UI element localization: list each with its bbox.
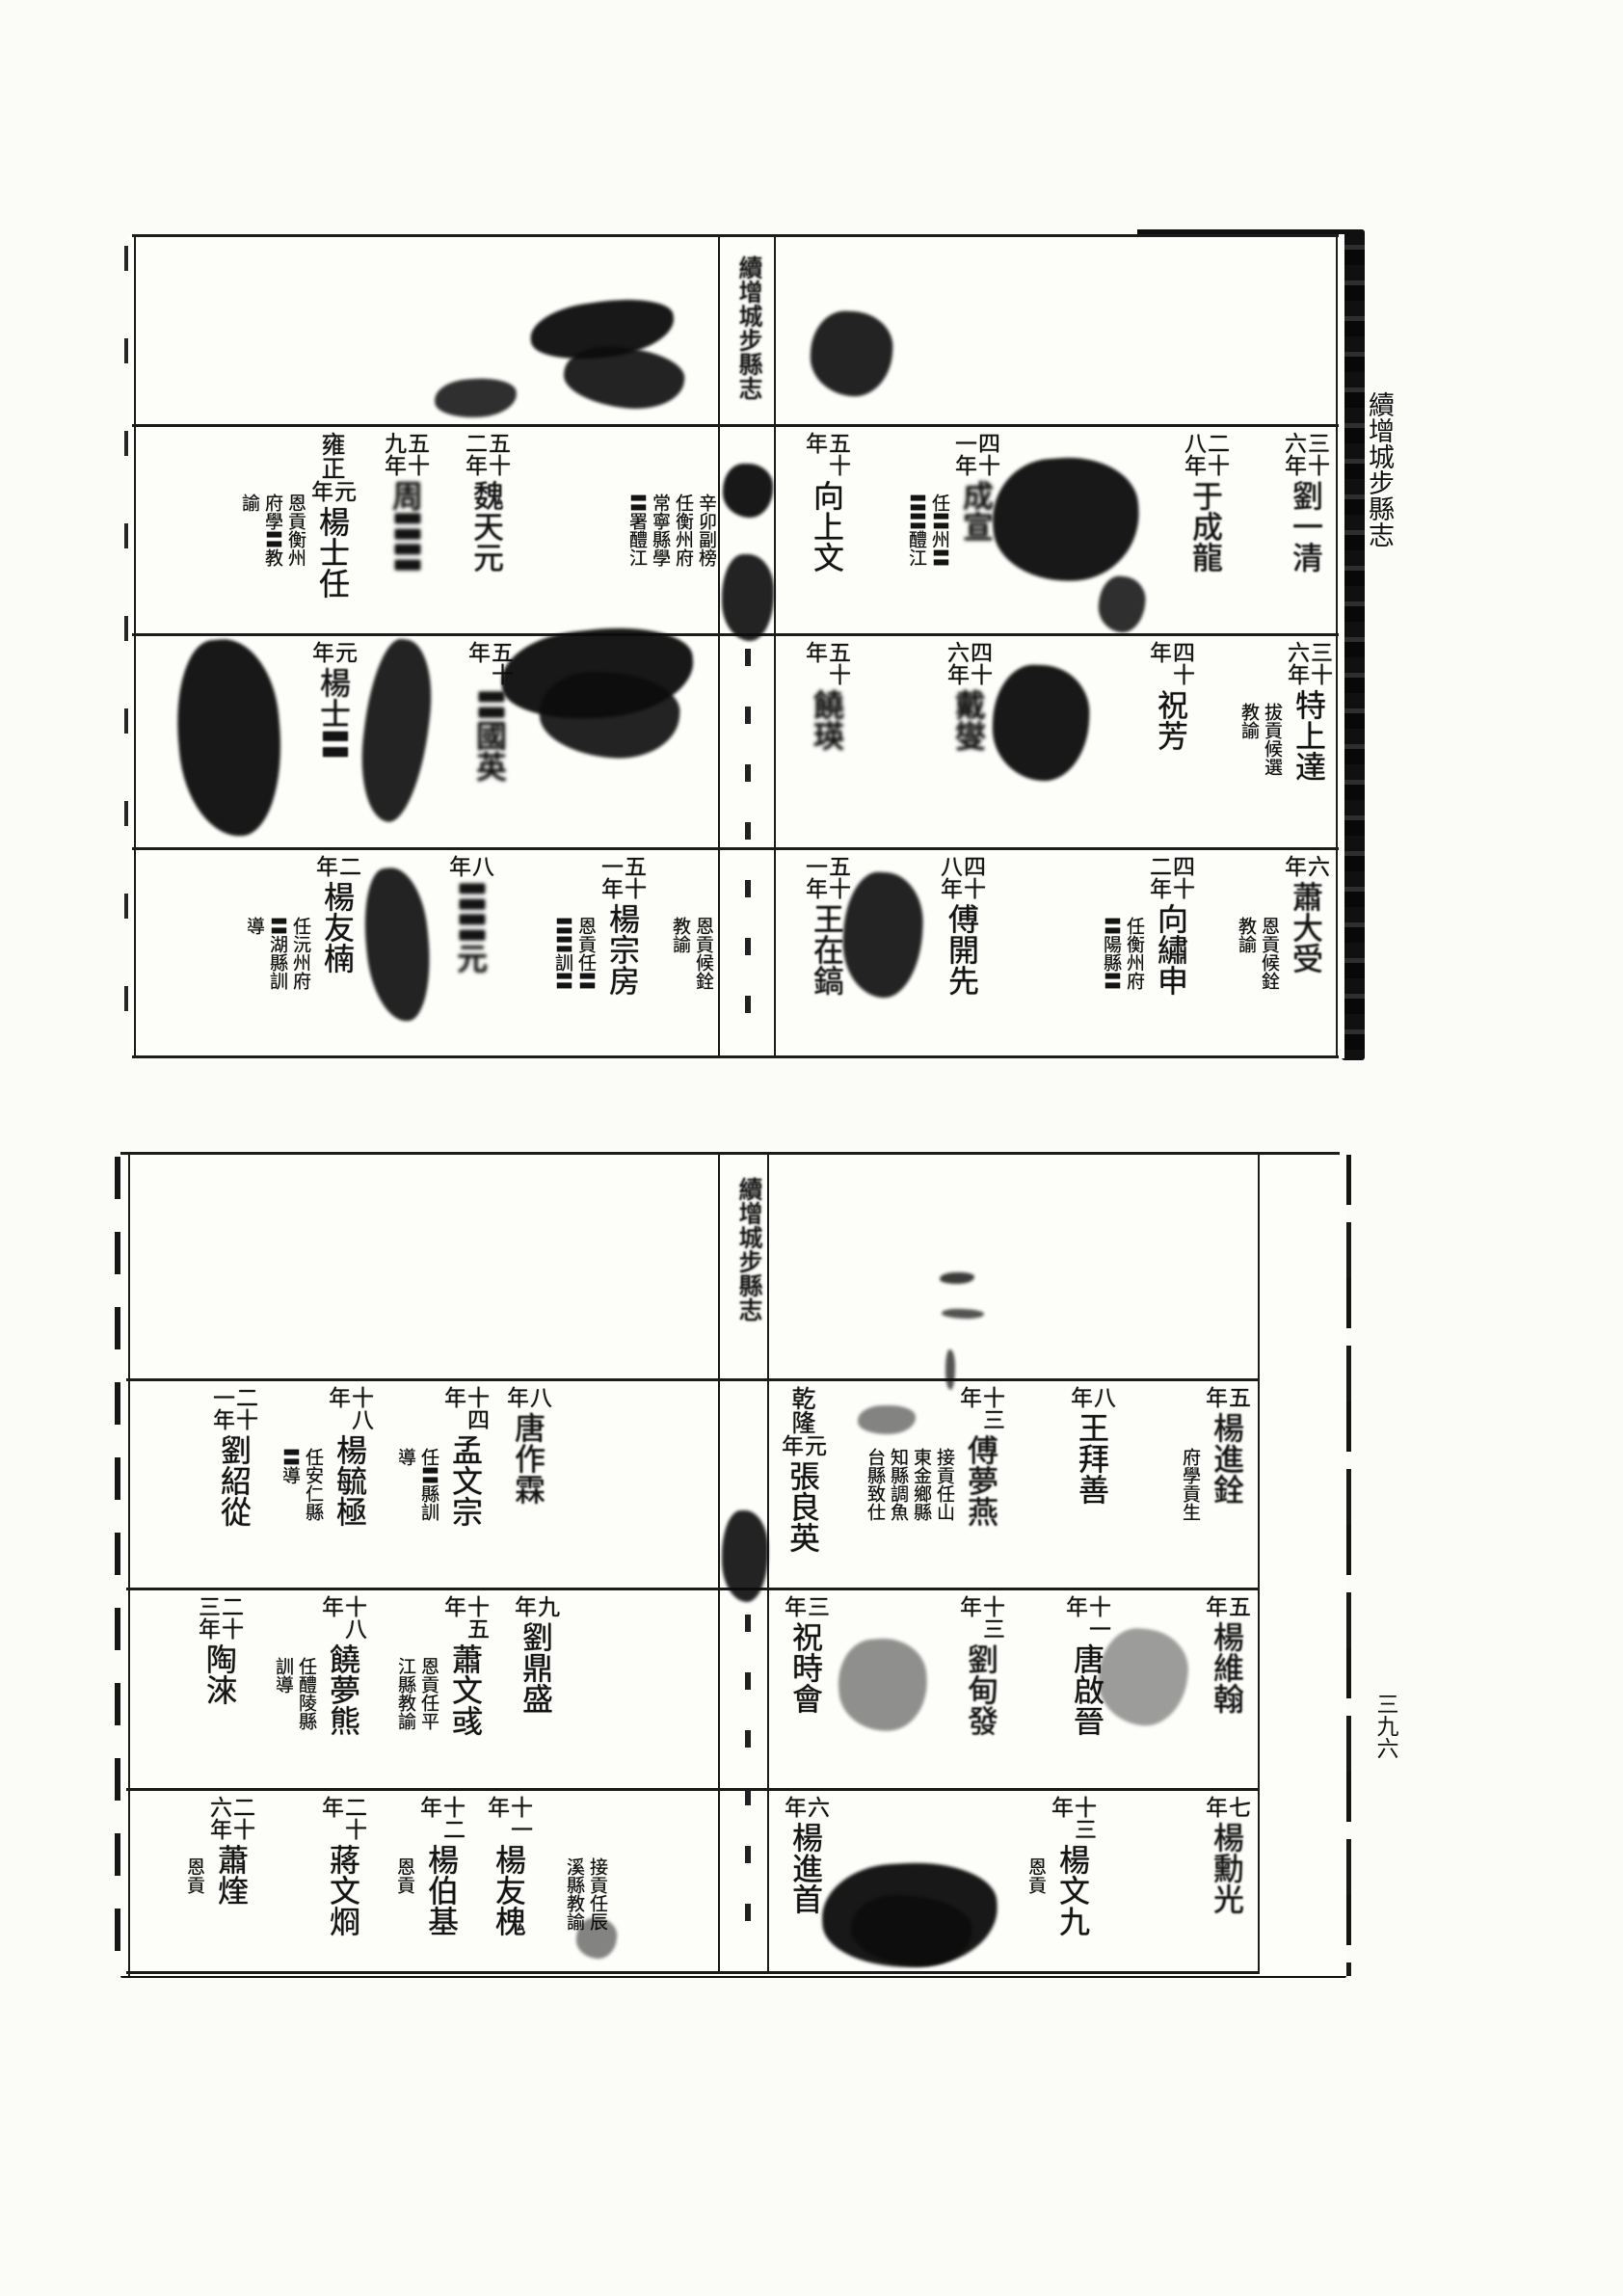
- official-name: 劉甸發: [960, 1643, 1000, 1736]
- annotation-column: 諭: [238, 494, 259, 567]
- year-subcolumn: 五: [1227, 1595, 1249, 1617]
- entry-annotations: 恩貢候銓教諭: [669, 917, 713, 990]
- official-name: 劉紹從: [213, 1434, 253, 1527]
- table-rule-vertical: [718, 234, 720, 1058]
- official-name: 楊文九: [1051, 1844, 1092, 1936]
- official-name: 楊士〓: [312, 667, 353, 760]
- entry-annotations: 恩貢衡州府學〓教諭: [238, 494, 306, 567]
- official-entry: 四十年祝芳: [1148, 641, 1192, 834]
- entry-annotations: 任〓州〓〓〓醴江: [905, 494, 949, 567]
- annotation-column: 導: [243, 917, 264, 990]
- official-name: 劉鼎盛: [515, 1621, 555, 1714]
- year-subcolumn: 年: [1204, 1386, 1226, 1408]
- official-name: 孟文宗: [444, 1434, 485, 1527]
- entry-year: 四十一年: [953, 432, 998, 476]
- year-subcolumn: 八: [1092, 1386, 1114, 1408]
- entry-main-column: 五十二年魏天元: [464, 432, 508, 573]
- official-name: 于成龍: [1184, 480, 1225, 573]
- annotation-column-group: 恩貢候銓教諭: [669, 855, 713, 1046]
- entry-year: 三十六年: [1283, 432, 1328, 476]
- official-entry: 四十二年向繡申任衡州府〓陽縣〓: [1100, 855, 1192, 1046]
- official-entry: 四十一年成宣任〓州〓〓〓醴江: [905, 432, 998, 623]
- official-entry: 八年唐作霖: [505, 1386, 549, 1577]
- ink-blob: [991, 663, 1091, 782]
- year-subcolumn: 年: [505, 1386, 527, 1408]
- entry-main-column: 五十九年周〓〓: [383, 432, 427, 573]
- ink-blob: [561, 342, 687, 414]
- entry-main-column: 二十八年于成龍: [1183, 432, 1227, 573]
- year-subcolumn: 年: [804, 641, 826, 685]
- year-subcolumn: 年: [447, 855, 469, 877]
- annotation-column: 台縣致仕: [864, 1448, 885, 1521]
- year-subcolumn: 八: [528, 1386, 550, 1408]
- table-rule-vertical: [1258, 1152, 1260, 1973]
- entry-year: 十二年: [418, 1796, 464, 1840]
- official-name: 〓國英: [468, 689, 509, 782]
- official-name: 楊勳光: [1206, 1822, 1246, 1914]
- year-subcolumn: 三年: [197, 1595, 219, 1640]
- year-subcolumn: 十四: [466, 1386, 488, 1430]
- entry-main-column: 十二年楊伯基: [418, 1796, 463, 1936]
- official-entry: 二十六年蕭煃恩貢: [183, 1796, 253, 1962]
- year-subcolumn: 年: [1050, 1796, 1072, 1840]
- entry-main-column: 四十八年傅開先: [939, 855, 983, 996]
- official-entry: 五十年饒瑛: [804, 641, 848, 834]
- entry-year: 十八年: [320, 1595, 365, 1640]
- entry-main-column: 十四年孟文宗: [442, 1386, 487, 1527]
- entry-main-column: 五年楊進銓: [1204, 1386, 1248, 1505]
- official-name: 楊士任: [311, 506, 352, 599]
- entry-year: 十三年: [958, 1386, 1003, 1430]
- entry-year: 六年: [783, 1796, 828, 1818]
- year-subcolumn: 六: [1306, 855, 1328, 877]
- annotation-column: 任衡州府: [1123, 917, 1144, 990]
- year-subcolumn: 四十: [969, 641, 991, 685]
- table-rule-horizontal: [132, 1055, 1339, 1058]
- torn-edge-right-top: [1342, 229, 1365, 1060]
- official-entry: 十四年孟文宗任〓縣訓導: [394, 1386, 487, 1577]
- entry-year: 四十八年: [939, 855, 984, 899]
- entry-main-column: 三年祝時會: [783, 1595, 827, 1714]
- entry-main-column: 十一年楊友槐: [486, 1796, 530, 1936]
- year-subcolumn: 五十: [827, 855, 849, 899]
- entry-annotations: 任衡州府〓陽縣〓: [1100, 917, 1144, 990]
- year-subcolumn: 元: [333, 641, 356, 663]
- entry-annotations: 恩貢任平江縣教諭: [394, 1657, 439, 1730]
- table-rule-horizontal: [132, 847, 1339, 850]
- official-entry: 十三年劉甸發: [958, 1595, 1002, 1778]
- official-name: 成宣: [955, 480, 996, 542]
- ink-blob: [989, 453, 1144, 586]
- official-entry: 六年楊進首: [783, 1796, 827, 1962]
- annotation-column: 知縣調魚: [887, 1448, 908, 1521]
- official-name: 楊宗房: [601, 903, 642, 996]
- year-subcolumn: 八: [470, 855, 492, 877]
- entry-main-column: 二十年蔣文烱: [320, 1796, 364, 1936]
- annotation-column: 〓〓訓〓: [551, 917, 572, 990]
- scanned-page: 續增城步縣志 三九六 續增城步縣志 三十六年劉一清二十八年于成龍四十一年成宣任〓…: [0, 0, 1623, 2296]
- ink-blob: [722, 554, 774, 641]
- entry-year: 五十九年: [383, 432, 428, 476]
- year-subcolumn: 年: [1148, 641, 1170, 685]
- official-name: 〓〓元: [449, 881, 490, 974]
- annotation-column: 恩貢衡州: [284, 494, 306, 567]
- entry-main-column: 六年楊進首: [783, 1796, 827, 1914]
- entry-year: 六年: [1283, 855, 1328, 877]
- entry-main-column: 十三年楊文九: [1050, 1796, 1094, 1936]
- official-name: 向繡申: [1150, 903, 1190, 996]
- year-subcolumn: 年: [783, 1595, 805, 1617]
- year-subcolumn: 十三: [1073, 1796, 1095, 1840]
- era-label: 乾隆: [788, 1386, 815, 1434]
- ink-blob: [836, 1636, 930, 1734]
- entry-year: 十五年: [442, 1595, 488, 1640]
- ink-blob: [940, 1271, 974, 1284]
- year-subcolumn: 六年: [1286, 641, 1308, 685]
- official-name: 蕭大受: [1285, 881, 1325, 974]
- ink-blob: [722, 1510, 768, 1602]
- entry-year: 十一年: [486, 1796, 531, 1840]
- entry-year: 十八年: [327, 1386, 372, 1430]
- year-subcolumn: 年: [1069, 1386, 1091, 1408]
- year-subcolumn: 二: [337, 855, 359, 877]
- table-rule-horizontal: [126, 1588, 1260, 1590]
- entry-main-column: 四十二年向繡申: [1148, 855, 1192, 996]
- official-entry: 三十六年劉一清: [1283, 432, 1327, 623]
- annotation-column: 〓陽縣〓: [1100, 917, 1121, 990]
- entry-annotations: 任醴陵縣訓導: [272, 1657, 316, 1730]
- year-subcolumn: 年: [783, 1796, 805, 1818]
- ink-blob: [942, 1308, 984, 1320]
- entry-year: 五十一年: [599, 855, 645, 899]
- official-name: 楊進銓: [1206, 1412, 1246, 1505]
- entry-year: 元年: [309, 480, 355, 502]
- year-subcolumn: 年: [1204, 1796, 1226, 1818]
- year-subcolumn: 一年: [953, 432, 975, 476]
- entry-annotations: 辛卯副榜任衡州府常寧縣學〓署醴江: [625, 494, 716, 567]
- official-entry: 六年蕭大受恩貢候銓教諭: [1235, 855, 1327, 1046]
- official-entry: 八年王拜善: [1069, 1386, 1113, 1577]
- year-subcolumn: 年: [327, 1386, 349, 1430]
- year-subcolumn: 四十: [976, 432, 998, 476]
- year-subcolumn: 五十: [487, 432, 509, 476]
- year-subcolumn: 十五: [466, 1595, 488, 1640]
- entry-year: 八年: [447, 855, 492, 877]
- official-entry: 十一年楊友槐: [486, 1796, 530, 1962]
- year-subcolumn: 四十: [962, 855, 984, 899]
- annotation-column: 任衡州府: [672, 494, 693, 567]
- fold-marks: [745, 1615, 751, 1952]
- official-name: 楊進首: [785, 1822, 825, 1914]
- official-name: 楊毓極: [329, 1434, 369, 1527]
- entry-year: 四十六年: [945, 641, 991, 685]
- official-name: 楊維翰: [1206, 1621, 1246, 1714]
- official-name: 周〓〓: [385, 480, 425, 573]
- table-rule-horizontal: [132, 424, 1339, 427]
- official-name: 傅開先: [941, 903, 981, 996]
- entry-year: 二十年: [320, 1796, 365, 1840]
- annotation-column: 恩貢候銓: [1258, 917, 1279, 990]
- official-name: 唐作霖: [507, 1412, 547, 1505]
- year-subcolumn: 年: [1283, 855, 1305, 877]
- year-subcolumn: 九: [536, 1595, 558, 1617]
- entry-main-column: 五十年〓國英: [466, 641, 511, 782]
- year-subcolumn: 年: [958, 1386, 980, 1430]
- entry-main-column: 二十六年蕭煃: [208, 1796, 253, 1906]
- ink-blob: [840, 870, 926, 1000]
- ink-blob: [434, 376, 519, 420]
- official-entry: 二十一年劉紹從: [211, 1386, 255, 1577]
- entry-main-column: 八年唐作霖: [505, 1386, 549, 1505]
- entry-annotations: 恩貢: [1024, 1857, 1046, 1894]
- ink-blob: [945, 1349, 955, 1390]
- entry-year: 二十三年: [197, 1595, 242, 1640]
- entry-main-column: 六年蕭大受: [1283, 855, 1327, 974]
- year-subcolumn: 年: [1064, 1595, 1086, 1640]
- fold-title-top: 續增城步縣志: [724, 255, 776, 400]
- year-subcolumn: 十八: [350, 1386, 372, 1430]
- official-entry: 二十三年陶淶: [197, 1595, 241, 1778]
- entry-year: 元年: [780, 1434, 825, 1456]
- year-subcolumn: 年: [418, 1796, 440, 1840]
- year-subcolumn: 四十: [1171, 641, 1193, 685]
- official-name: 饒夢熊: [322, 1643, 362, 1736]
- annotation-column: 〓湖縣訓: [266, 917, 287, 990]
- page-number: 三九六: [1372, 1693, 1397, 1759]
- entry-year: 二年: [314, 855, 359, 877]
- year-subcolumn: 二十: [234, 1386, 256, 1430]
- official-name: 傅夢燕: [960, 1434, 1000, 1527]
- annotation-column: 東金鄉縣: [910, 1448, 931, 1521]
- annotation-column: 教諭: [669, 917, 690, 990]
- year-subcolumn: 五十: [623, 855, 645, 899]
- table-rule-vertical: [718, 1152, 720, 1973]
- fold-marks: [745, 649, 751, 1034]
- entry-main-column: 七年楊勳光: [1204, 1796, 1248, 1914]
- entry-main-column: 三十六年劉一清: [1283, 432, 1327, 573]
- table-rule-horizontal: [120, 1152, 1340, 1155]
- entry-main-column: 雍正元年楊士任: [309, 432, 354, 599]
- annotation-column: 府學貢生: [1179, 1448, 1200, 1521]
- entry-annotations: 恩貢: [393, 1857, 414, 1894]
- year-subcolumn: 一年: [599, 855, 622, 899]
- entry-main-column: 五十年向上文: [804, 432, 848, 573]
- official-name: 特上達: [1288, 689, 1328, 782]
- entry-main-column: 四十一年成宣: [953, 432, 998, 542]
- official-entry: 五年楊維翰: [1204, 1595, 1248, 1778]
- year-subcolumn: 七: [1227, 1796, 1249, 1818]
- year-subcolumn: 年: [442, 1595, 465, 1640]
- annotation-column: 常寧縣學: [649, 494, 670, 567]
- entry-main-column: 元年楊士〓: [310, 641, 355, 760]
- entry-annotations: 任安仁縣〓導: [279, 1448, 323, 1521]
- entry-main-column: 十三年劉甸發: [958, 1595, 1002, 1736]
- entry-annotations: 拔貢候選教諭: [1237, 703, 1282, 776]
- table-rule-vertical: [1336, 234, 1338, 1055]
- annotation-column: 任沅州府: [289, 917, 310, 990]
- year-subcolumn: 年: [320, 1796, 342, 1840]
- official-entry: 八年〓〓元: [447, 855, 492, 1046]
- official-name: 王在鎬: [806, 903, 846, 996]
- entry-year: 十四年: [442, 1386, 488, 1430]
- annotation-column: 恩貢: [1024, 1857, 1046, 1894]
- year-subcolumn: 年: [442, 1386, 465, 1430]
- entry-year: 五十年: [804, 641, 849, 685]
- official-name: 戴燮: [947, 689, 988, 751]
- official-entry: 九年劉鼎盛: [513, 1595, 557, 1778]
- year-subcolumn: 八年: [1183, 432, 1205, 476]
- official-entry: 十五年蕭文彧恩貢任平江縣教諭: [394, 1595, 487, 1778]
- annotation-column: 任〓縣訓: [417, 1448, 439, 1521]
- entry-year: 八年: [1069, 1386, 1114, 1408]
- year-subcolumn: 二年: [464, 432, 486, 476]
- official-entry: 三十六年特上達拔貢候選教諭: [1237, 641, 1330, 834]
- year-subcolumn: 年: [804, 432, 826, 476]
- entry-main-column: 乾隆元年張良英: [780, 1386, 824, 1553]
- entry-annotations: 恩貢候銓教諭: [1235, 917, 1279, 990]
- annotation-column: 恩貢: [393, 1857, 414, 1894]
- annotation-column: 任〓州〓: [928, 494, 949, 567]
- entry-main-column: 九年劉鼎盛: [513, 1595, 557, 1714]
- official-entry: 乾隆元年張良英: [780, 1386, 824, 1577]
- entry-annotations: 恩貢任〓〓〓訓〓: [551, 917, 596, 990]
- year-subcolumn: 年: [309, 480, 332, 502]
- entry-year: 元年: [310, 641, 356, 663]
- annotation-column: 任安仁縣: [302, 1448, 323, 1521]
- official-entry: 二十年蔣文烱: [320, 1796, 364, 1962]
- official-entry: 二年楊友楠任沅州府〓湖縣訓導: [243, 855, 359, 1046]
- entry-main-column: 五十一年楊宗房: [599, 855, 644, 996]
- table-rule-vertical: [128, 1152, 130, 1976]
- annotation-column-group: 辛卯副榜任衡州府常寧縣學〓署醴江: [625, 432, 716, 623]
- entry-main-column: 五十一年王在鎬: [804, 855, 848, 996]
- annotation-column: 拔貢候選: [1261, 703, 1282, 776]
- official-name: 蕭煃: [210, 1844, 251, 1906]
- year-subcolumn: 二十: [1206, 432, 1228, 476]
- entry-main-column: 五年楊維翰: [1204, 1595, 1248, 1714]
- entry-main-column: 四十六年戴燮: [945, 641, 990, 751]
- official-entry: 雍正元年楊士任恩貢衡州府學〓教諭: [238, 432, 354, 623]
- entry-year: 十一年: [1064, 1595, 1109, 1640]
- entry-annotations: 府學貢生: [1179, 1448, 1200, 1521]
- entry-year: 五十年: [804, 432, 849, 476]
- year-subcolumn: 元: [803, 1434, 825, 1456]
- entry-main-column: 五十年饒瑛: [804, 641, 848, 751]
- year-subcolumn: 年: [1204, 1595, 1226, 1617]
- year-subcolumn: 二年: [1148, 855, 1170, 899]
- entry-year: 二十一年: [211, 1386, 256, 1430]
- official-entry: 十八年楊毓極任安仁縣〓導: [279, 1386, 371, 1577]
- year-subcolumn: 年: [320, 1595, 342, 1640]
- year-subcolumn: 四十: [1171, 855, 1193, 899]
- official-name: 向上文: [806, 480, 846, 573]
- ink-blob: [359, 865, 437, 1025]
- annotation-column: 接貢任山: [933, 1448, 954, 1521]
- official-name: 楊友楠: [316, 881, 357, 974]
- year-subcolumn: 十二: [441, 1796, 464, 1840]
- year-subcolumn: 十一: [509, 1796, 531, 1840]
- official-name: 張良英: [782, 1460, 822, 1553]
- bottom-leaf: 續增城步縣志 五年楊進銓府學貢生八年王拜善十三年傅夢燕接貢任山東金鄉縣知縣調魚台…: [120, 1152, 1346, 1976]
- year-subcolumn: 年: [780, 1434, 802, 1456]
- official-entry: 三年祝時會: [783, 1595, 827, 1778]
- official-entry: 五十九年周〓〓: [383, 432, 427, 623]
- year-subcolumn: 十三: [981, 1595, 1003, 1640]
- annotation-column: 〓〓醴江: [905, 494, 926, 567]
- entry-year: 九年: [513, 1595, 558, 1617]
- annotation-column: 辛卯副榜: [695, 494, 716, 567]
- official-entry: 七年楊勳光: [1204, 1796, 1248, 1962]
- entry-annotations: 任〓縣訓導: [394, 1448, 439, 1521]
- year-subcolumn: 十八: [343, 1595, 365, 1640]
- table-rule-horizontal: [126, 1378, 1260, 1381]
- official-entry: 十二年楊伯基恩貢: [393, 1796, 463, 1962]
- official-name: 祝芳: [1150, 689, 1190, 751]
- entry-main-column: 十五年蕭文彧: [442, 1595, 487, 1736]
- year-subcolumn: 二十: [343, 1796, 365, 1840]
- annotation-column: 恩貢候銓: [692, 917, 713, 990]
- year-subcolumn: 二十: [220, 1595, 242, 1640]
- year-subcolumn: 五: [1227, 1386, 1249, 1408]
- annotation-column: 導: [394, 1448, 415, 1521]
- official-name: 蕭文彧: [444, 1643, 485, 1736]
- ink-blob: [1096, 574, 1148, 635]
- era-label: 雍正: [318, 432, 345, 480]
- table-rule-horizontal: [132, 234, 1339, 237]
- year-subcolumn: 元: [333, 480, 355, 502]
- ink-blob: [809, 309, 894, 398]
- official-entry: 二十八年于成龍: [1183, 432, 1227, 623]
- year-subcolumn: 九年: [383, 432, 405, 476]
- entry-main-column: 二年楊友楠: [314, 855, 359, 974]
- official-entry: 五十二年魏天元: [464, 432, 508, 623]
- ink-blob: [723, 464, 773, 518]
- ink-blob: [170, 635, 288, 841]
- official-name: 楊伯基: [420, 1844, 461, 1936]
- ink-blob: [1094, 1624, 1192, 1729]
- entry-annotations: 接貢任山東金鄉縣知縣調魚台縣致仕: [864, 1448, 954, 1521]
- year-subcolumn: 年: [314, 855, 336, 877]
- entry-year: 五年: [1204, 1386, 1249, 1408]
- year-subcolumn: 六年: [1283, 432, 1305, 476]
- entry-main-column: 三十六年特上達: [1286, 641, 1330, 782]
- entry-main-column: 十八年楊毓極: [327, 1386, 371, 1527]
- entry-main-column: 四十年祝芳: [1148, 641, 1192, 751]
- year-subcolumn: 年: [958, 1595, 980, 1640]
- entry-year: 十三年: [958, 1595, 1003, 1640]
- official-name: 饒瑛: [806, 689, 846, 751]
- year-subcolumn: 年: [466, 641, 489, 685]
- table-rule-vertical: [774, 234, 776, 1058]
- annotation-column: 溪縣教諭: [563, 1857, 584, 1931]
- year-subcolumn: 年: [310, 641, 333, 663]
- annotation-column: 恩貢任〓: [574, 917, 596, 990]
- year-subcolumn: 五十: [827, 432, 849, 476]
- official-name: 陶淶: [199, 1643, 239, 1705]
- entry-year: 八年: [505, 1386, 550, 1408]
- annotation-column: 任醴陵縣: [295, 1657, 316, 1730]
- entry-year: 五十二年: [464, 432, 509, 476]
- entry-main-column: 十八年饒夢熊: [320, 1595, 364, 1736]
- entry-main-column: 二十一年劉紹從: [211, 1386, 255, 1527]
- annotation-column: 〓導: [279, 1448, 300, 1521]
- year-subcolumn: 三: [806, 1595, 828, 1617]
- official-name: 王拜善: [1071, 1412, 1111, 1505]
- official-name: 劉一清: [1285, 480, 1325, 573]
- year-subcolumn: 五十: [827, 641, 849, 685]
- year-subcolumn: 年: [486, 1796, 508, 1840]
- entry-year: 二十八年: [1183, 432, 1228, 476]
